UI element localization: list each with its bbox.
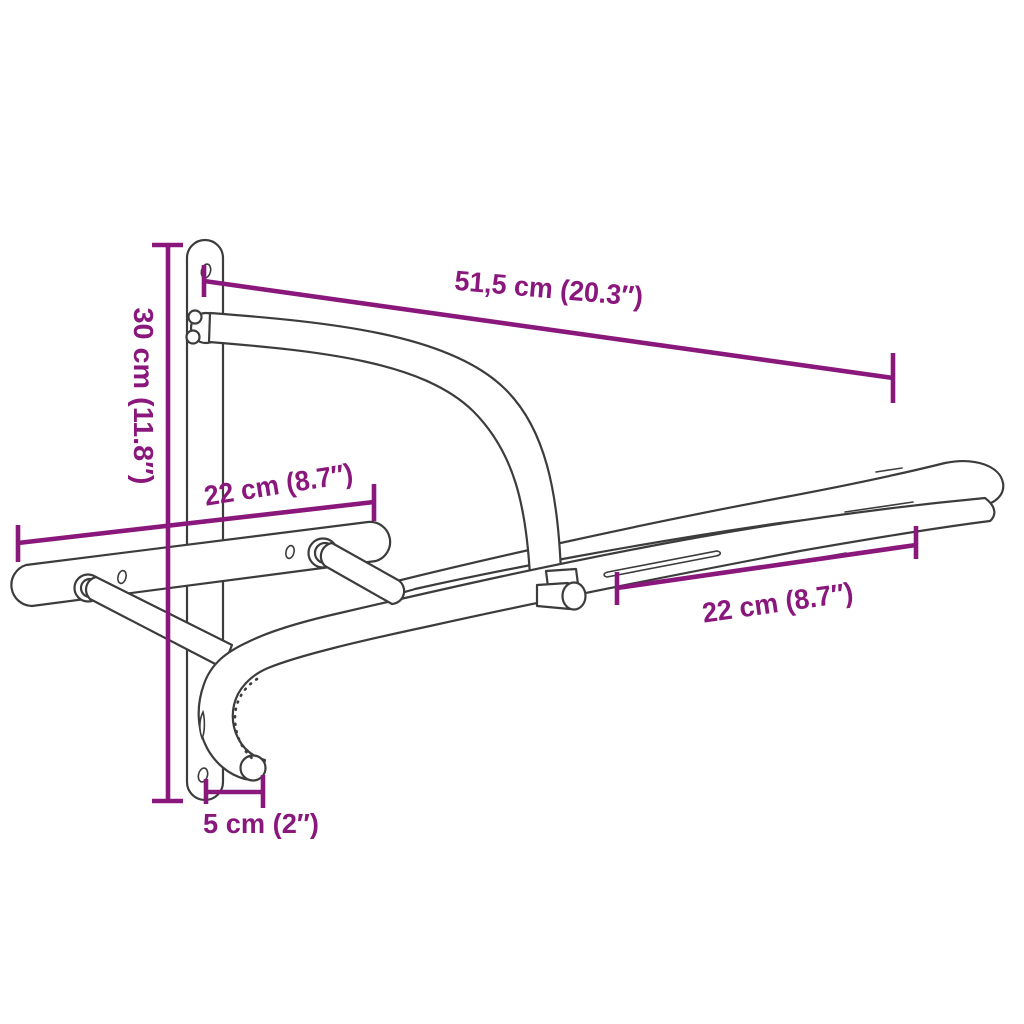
center-cylinder-cap [563,583,586,610]
diagram-canvas: 51,5 cm (20.3″) 30 cm (11.8″) 22 cm (8.7… [0,0,1024,1024]
dimension-label-right-rail: 22 cm (8.7″) [700,577,855,629]
arm-flange-lobe-top [189,311,202,324]
hook-highlight [200,712,205,738]
dimension-label-left-rail: 22 cm (8.7″) [202,458,355,512]
dimension-label-height: 30 cm (11.8″) [128,308,159,485]
arm-flange-lobe-bottom [187,331,200,344]
saddle-rack-dimension-diagram: 51,5 cm (20.3″) 30 cm (11.8″) 22 cm (8.7… [0,0,1024,1024]
dimension-label-depth: 51,5 cm (20.3″) [453,265,644,312]
dimension-label-hook: 5 cm (2″) [203,808,319,839]
rail-seam-2 [876,468,902,472]
